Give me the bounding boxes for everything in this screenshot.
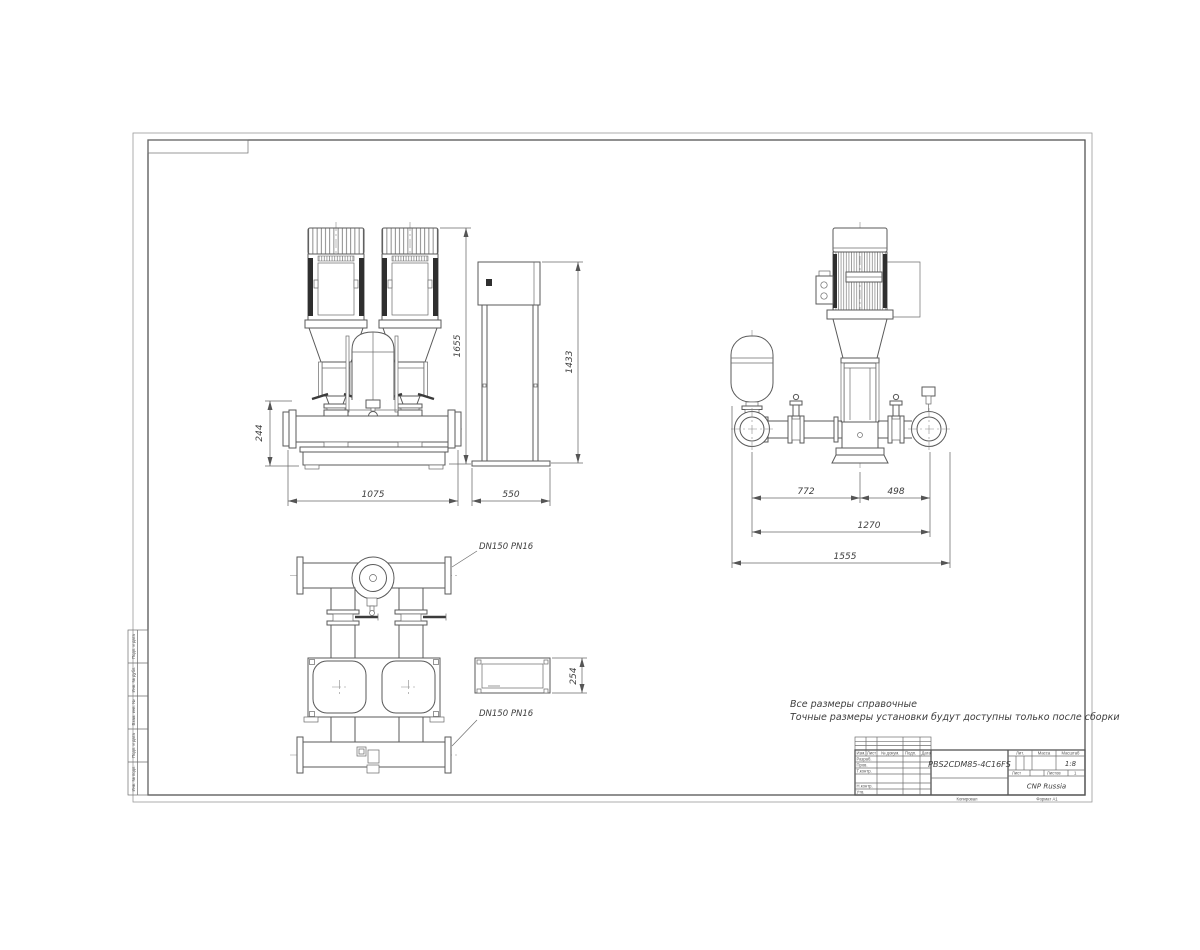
drawing-sheet: Подп. и дата Инв. № дубл. Взам. инв. № П… — [0, 0, 1200, 950]
note-line-1: Все размеры справочные — [790, 699, 917, 710]
margin-strip: Подп. и дата Инв. № дубл. Взам. инв. № П… — [128, 630, 148, 795]
dim-1433: 1433 — [565, 350, 575, 373]
front-view: 244 1075 1655 — [255, 222, 471, 506]
pump-right — [832, 319, 888, 463]
sheet-frame — [133, 133, 1092, 802]
side-view-cabinet: 1433 550 — [472, 262, 583, 506]
tb-header-data: Дата — [922, 751, 932, 756]
lower-manifold — [290, 717, 460, 773]
dim-772: 772 — [797, 487, 814, 497]
top-frame-motors — [304, 658, 444, 722]
tb-header-izm: Изм. — [857, 751, 866, 756]
dim-244: 244 — [255, 424, 265, 441]
dim-1270: 1270 — [858, 521, 881, 531]
cabinet-top-dimension: 254 — [552, 658, 587, 693]
margin-cell-label: Инв. № дубл. — [131, 667, 136, 693]
margin-cell-label: Подп. и дата — [131, 732, 136, 757]
tb-massa-label: Масса — [1038, 751, 1051, 756]
tb-row-prov: Пров. — [857, 763, 868, 768]
manifold-front — [283, 410, 463, 469]
tb-scale-value: 1:8 — [1065, 760, 1077, 768]
tb-row-nkontr: Н.контр. — [857, 784, 873, 789]
title-block: Изм. Лист № докум. Подп. Дата Разраб. Пр… — [855, 737, 1085, 802]
flange-callouts: DN150 PN16 DN150 PN16 — [452, 542, 534, 746]
cabinet-top-view: 254 — [475, 658, 587, 693]
margin-cell-label: Подп. и дата — [131, 633, 136, 658]
dim-254: 254 — [569, 667, 579, 684]
dim-1555: 1555 — [834, 552, 857, 562]
dim-550: 550 — [502, 490, 519, 500]
tb-header-dokum: № докум. — [881, 751, 899, 756]
margin-cell-label: Взам. инв. № — [131, 699, 136, 725]
tb-header-list: Лист — [867, 751, 876, 756]
tb-designation: PBS2CDM85-4C16FS — [928, 760, 1011, 769]
tb-listov-value: 1 — [1074, 771, 1077, 776]
expansion-tank — [731, 330, 773, 413]
dim-1075: 1075 — [362, 490, 385, 500]
tb-company: CNP Russia — [1027, 783, 1066, 791]
top-valves — [327, 588, 446, 658]
membrane-tank-front — [346, 332, 398, 427]
flange-label-bottom: DN150 PN16 — [479, 709, 534, 719]
title-block-right: Лит. Масса Масштаб 1:8 Лист Листов 1 CNP… — [1008, 750, 1085, 791]
tb-row-tkontr: Т.контр. — [857, 769, 872, 774]
tb-masshtab-label: Масштаб — [1062, 751, 1081, 756]
tb-list-label: Лист — [1012, 771, 1021, 776]
tb-row-razrab: Разраб. — [857, 757, 872, 762]
note-line-2: Точные размеры установки будут доступны … — [790, 712, 1120, 723]
tb-format: Формат А1 — [1036, 797, 1058, 802]
right-side-view: 772 498 1270 1555 — [731, 222, 950, 568]
dim-1655: 1655 — [453, 334, 463, 357]
notes: Все размеры справочные Точные размеры ус… — [790, 699, 1120, 723]
flange-label-top: DN150 PN16 — [479, 542, 534, 552]
title-block-left-grid: Изм. Лист № докум. Подп. Дата Разраб. Пр… — [855, 750, 931, 795]
tb-header-podp: Подп. — [905, 751, 916, 756]
tb-lit-label: Лит. — [1016, 751, 1024, 756]
tb-row-utv: Утв. — [857, 790, 865, 795]
cabinet-silhouette — [887, 262, 920, 317]
margin-cell-label: Инв. № подл. — [131, 765, 136, 791]
tb-listov-label: Листов — [1047, 771, 1061, 776]
tb-kopiroval: Копировал — [957, 797, 979, 802]
motor-right — [816, 228, 893, 319]
dim-498: 498 — [887, 487, 904, 497]
